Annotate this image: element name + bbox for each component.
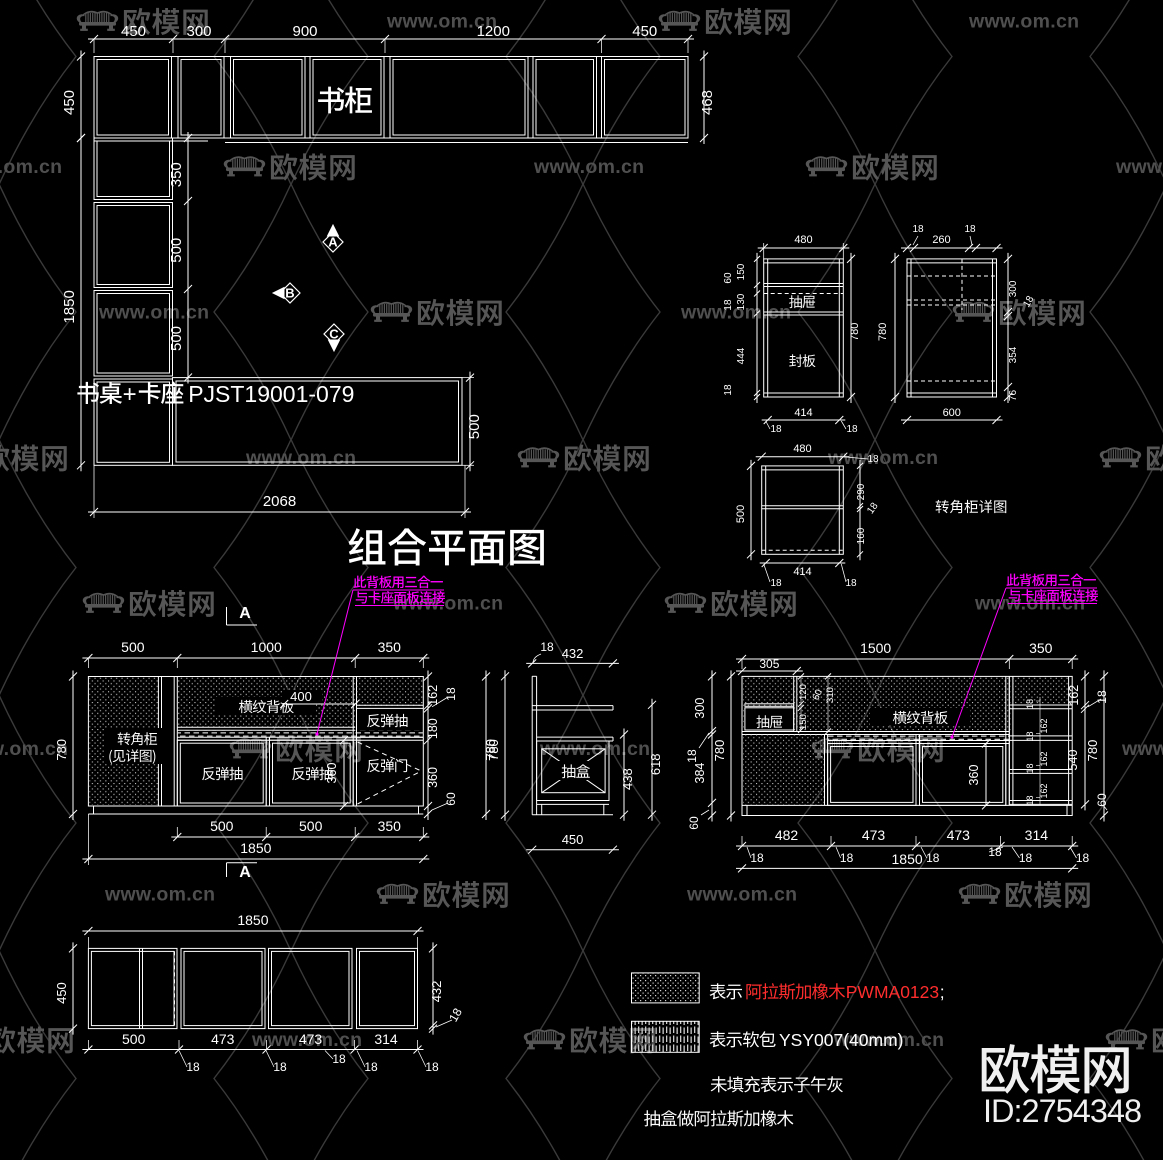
svg-text:310: 310	[825, 687, 836, 703]
svg-text:314: 314	[1025, 827, 1049, 843]
svg-text:900: 900	[292, 23, 317, 40]
svg-text:18: 18	[444, 687, 458, 701]
svg-text:60: 60	[1095, 793, 1109, 807]
svg-text:YSY007(40mm): YSY007(40mm)	[779, 1030, 904, 1050]
svg-text:162: 162	[1039, 751, 1049, 766]
svg-text:618: 618	[648, 753, 663, 775]
svg-text:300: 300	[693, 698, 707, 719]
svg-text:PJST19001-079: PJST19001-079	[188, 381, 354, 407]
svg-text:780: 780	[877, 323, 889, 341]
svg-text:780: 780	[712, 740, 727, 762]
svg-text:B: B	[285, 286, 294, 301]
svg-text:76: 76	[1008, 390, 1019, 402]
svg-text:1850: 1850	[240, 840, 271, 856]
svg-text:www.om.cn: www.om.cn	[533, 156, 644, 178]
svg-text:18: 18	[988, 845, 1002, 859]
svg-text:+: +	[123, 381, 137, 408]
svg-text:162: 162	[426, 685, 440, 706]
svg-text:473: 473	[862, 827, 886, 843]
svg-text:500: 500	[168, 326, 185, 351]
svg-text:18: 18	[273, 1060, 287, 1074]
svg-text:300: 300	[186, 23, 211, 40]
svg-text:780: 780	[849, 323, 861, 341]
svg-text:162: 162	[1039, 783, 1049, 798]
svg-text:www.om.cn: www.om.cn	[1121, 738, 1163, 760]
svg-text:500: 500	[121, 639, 145, 655]
svg-text:www.om.cn: www.om.cn	[686, 884, 797, 906]
svg-text:450: 450	[562, 832, 584, 847]
svg-text:120: 120	[798, 684, 809, 700]
svg-text:130: 130	[736, 293, 747, 310]
svg-text:305: 305	[759, 657, 779, 671]
svg-text:290: 290	[856, 483, 867, 500]
svg-text:18: 18	[364, 1060, 378, 1074]
svg-text:60: 60	[723, 272, 734, 284]
svg-text:414: 414	[793, 566, 811, 578]
svg-text:780: 780	[1085, 740, 1100, 762]
svg-text:18: 18	[750, 851, 764, 865]
svg-text:A: A	[239, 605, 251, 622]
svg-text:;: ;	[940, 982, 945, 1002]
svg-text:1200: 1200	[477, 23, 510, 40]
svg-text:A: A	[328, 235, 338, 250]
svg-text:18: 18	[840, 851, 854, 865]
svg-text:1500: 1500	[860, 640, 891, 656]
svg-text:1850: 1850	[892, 851, 923, 867]
svg-text:1850: 1850	[237, 912, 268, 928]
svg-text:360: 360	[426, 767, 440, 788]
svg-text:354: 354	[1008, 346, 1019, 363]
svg-text:PWMA0123: PWMA0123	[846, 982, 939, 1002]
svg-text:780: 780	[486, 739, 501, 761]
svg-text:18: 18	[846, 424, 858, 435]
svg-text:260: 260	[932, 234, 950, 246]
svg-text:600: 600	[943, 407, 961, 419]
svg-text:18: 18	[1025, 731, 1035, 741]
svg-text:1850: 1850	[61, 290, 78, 323]
svg-text:www.om.cn: www.om.cn	[104, 884, 215, 906]
svg-text:www.om.cn: www.om.cn	[968, 11, 1079, 33]
svg-text:18: 18	[1025, 699, 1035, 709]
svg-text:18: 18	[770, 424, 782, 435]
svg-text:18: 18	[685, 749, 699, 763]
svg-text:18: 18	[540, 640, 554, 654]
svg-text:18: 18	[926, 851, 940, 865]
svg-text:500: 500	[466, 414, 483, 439]
svg-text:480: 480	[793, 443, 811, 455]
svg-text:360: 360	[325, 763, 339, 784]
svg-text:384: 384	[693, 763, 707, 784]
svg-text:162: 162	[1067, 685, 1081, 706]
svg-text:150: 150	[736, 263, 747, 280]
svg-text:450: 450	[632, 23, 657, 40]
svg-text:473: 473	[947, 827, 971, 843]
svg-text:18: 18	[912, 224, 924, 235]
svg-text:ID:2754348: ID:2754348	[983, 1093, 1141, 1129]
svg-text:2068: 2068	[263, 493, 296, 510]
svg-text:18: 18	[425, 1060, 439, 1074]
svg-text:350: 350	[168, 162, 185, 187]
svg-text:18: 18	[867, 454, 879, 465]
svg-text:C: C	[329, 327, 339, 342]
svg-text:A: A	[239, 864, 251, 881]
svg-text:500: 500	[168, 238, 185, 263]
svg-text:450: 450	[61, 90, 78, 115]
svg-text:18: 18	[770, 578, 782, 589]
svg-text:468: 468	[699, 90, 716, 115]
svg-text:1000: 1000	[251, 639, 282, 655]
svg-text:432: 432	[429, 981, 444, 1003]
svg-text:18: 18	[1076, 851, 1090, 865]
svg-text:432: 432	[562, 646, 584, 661]
svg-text:414: 414	[794, 407, 812, 419]
svg-text:162: 162	[1039, 718, 1049, 733]
svg-text:350: 350	[378, 818, 402, 834]
svg-text:300: 300	[1008, 280, 1019, 297]
svg-text:350: 350	[1029, 640, 1053, 656]
svg-text:60: 60	[687, 816, 701, 830]
svg-text:450: 450	[54, 982, 69, 1004]
svg-text:18: 18	[964, 224, 976, 235]
svg-text:540: 540	[1066, 750, 1080, 771]
svg-text:180: 180	[426, 718, 440, 739]
svg-text:450: 450	[121, 23, 146, 40]
svg-text:18: 18	[186, 1060, 200, 1074]
svg-text:500: 500	[735, 505, 747, 523]
svg-text:160: 160	[856, 527, 867, 544]
svg-text:18: 18	[723, 384, 734, 396]
svg-text:500: 500	[122, 1031, 146, 1047]
svg-text:www.om.cn: www.om.cn	[1115, 156, 1163, 178]
svg-text:360: 360	[967, 765, 981, 786]
svg-text:500: 500	[299, 818, 323, 834]
svg-text:18: 18	[1025, 763, 1035, 773]
svg-text:482: 482	[775, 827, 799, 843]
svg-text:18: 18	[723, 299, 734, 311]
svg-text:473: 473	[299, 1031, 323, 1047]
svg-text:18: 18	[1025, 795, 1035, 805]
svg-text:438: 438	[620, 768, 635, 790]
svg-text:480: 480	[794, 234, 812, 246]
svg-text:314: 314	[374, 1031, 398, 1047]
svg-text:500: 500	[210, 818, 234, 834]
svg-text:www.om.cn: www.om.cn	[98, 302, 209, 324]
svg-text:444: 444	[736, 347, 747, 364]
svg-text:18: 18	[332, 1052, 346, 1066]
svg-text:350: 350	[378, 639, 402, 655]
svg-text:400: 400	[290, 689, 312, 704]
svg-text:473: 473	[211, 1031, 235, 1047]
svg-text:18: 18	[1019, 851, 1033, 865]
svg-text:780: 780	[54, 739, 69, 761]
svg-text:www.om.cn: www.om.cn	[0, 156, 62, 178]
svg-text:18: 18	[845, 578, 857, 589]
